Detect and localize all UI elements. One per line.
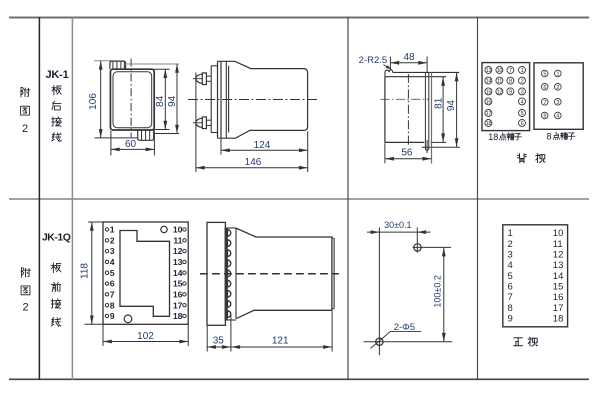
svg-text:12: 12 <box>497 90 503 96</box>
svg-text:3: 3 <box>508 250 513 261</box>
svg-text:35: 35 <box>213 336 225 347</box>
svg-text:5: 5 <box>110 268 115 278</box>
svg-text:2: 2 <box>22 302 28 314</box>
svg-text:2-R2.5: 2-R2.5 <box>359 55 388 66</box>
svg-text:13: 13 <box>173 257 183 267</box>
svg-text:6: 6 <box>508 281 513 292</box>
svg-text:15: 15 <box>553 281 564 292</box>
svg-text:94: 94 <box>446 100 457 112</box>
svg-text:2: 2 <box>22 123 28 135</box>
svg-text:30±0.1: 30±0.1 <box>384 220 411 230</box>
svg-text:2: 2 <box>521 79 524 85</box>
svg-text:17: 17 <box>173 300 183 310</box>
svg-text:146: 146 <box>245 157 262 168</box>
svg-text:9: 9 <box>110 311 115 321</box>
svg-text:14: 14 <box>486 79 492 85</box>
svg-text:9: 9 <box>508 313 513 324</box>
svg-text:1: 1 <box>521 68 524 74</box>
svg-text:16: 16 <box>486 100 492 106</box>
svg-text:8: 8 <box>543 114 546 120</box>
svg-text:1: 1 <box>110 225 115 235</box>
svg-text:18: 18 <box>486 121 492 127</box>
svg-text:5: 5 <box>508 271 513 282</box>
svg-text:2: 2 <box>110 235 115 245</box>
svg-text:8: 8 <box>546 131 551 141</box>
svg-text:7: 7 <box>509 68 512 74</box>
svg-text:5: 5 <box>543 72 546 78</box>
svg-text:81: 81 <box>433 97 444 109</box>
svg-text:6: 6 <box>110 279 115 289</box>
svg-text:13: 13 <box>553 260 564 271</box>
svg-text:3: 3 <box>556 100 559 106</box>
svg-text:48: 48 <box>403 52 415 63</box>
svg-text:118: 118 <box>80 263 91 279</box>
svg-text:10: 10 <box>553 228 564 239</box>
svg-text:106: 106 <box>88 93 99 110</box>
svg-text:7: 7 <box>508 292 513 303</box>
svg-text:1: 1 <box>508 228 513 239</box>
svg-text:6: 6 <box>543 85 546 91</box>
svg-text:16: 16 <box>553 292 564 303</box>
svg-text:15: 15 <box>173 279 183 289</box>
svg-text:4: 4 <box>556 114 559 120</box>
svg-text:7: 7 <box>543 100 546 106</box>
svg-text:JK-1: JK-1 <box>45 69 68 81</box>
svg-text:12: 12 <box>173 246 183 256</box>
svg-text:5: 5 <box>521 111 524 117</box>
svg-text:12: 12 <box>553 250 564 261</box>
svg-text:11: 11 <box>173 235 182 245</box>
svg-text:17: 17 <box>486 111 492 117</box>
svg-text:121: 121 <box>272 336 289 347</box>
svg-text:16: 16 <box>173 289 183 299</box>
svg-text:14: 14 <box>553 271 564 282</box>
svg-text:2: 2 <box>508 239 513 250</box>
svg-text:94: 94 <box>167 95 178 107</box>
svg-text:4: 4 <box>110 257 115 267</box>
svg-text:56: 56 <box>401 148 413 159</box>
svg-text:11: 11 <box>497 79 502 85</box>
svg-text:15: 15 <box>486 90 492 96</box>
svg-text:100±0.2: 100±0.2 <box>433 275 443 307</box>
svg-text:7: 7 <box>110 289 115 299</box>
svg-text:10: 10 <box>173 225 183 235</box>
svg-text:1: 1 <box>556 72 559 78</box>
svg-text:JK-1Q: JK-1Q <box>42 232 71 244</box>
svg-text:11: 11 <box>553 239 563 250</box>
svg-text:17: 17 <box>553 303 564 314</box>
svg-text:8: 8 <box>508 303 513 314</box>
svg-text:102: 102 <box>137 331 154 342</box>
svg-text:4: 4 <box>521 100 524 106</box>
svg-text:4: 4 <box>508 260 513 271</box>
svg-text:6: 6 <box>521 121 524 127</box>
svg-text:8: 8 <box>110 300 115 310</box>
svg-text:14: 14 <box>173 268 183 278</box>
svg-text:18: 18 <box>488 132 498 142</box>
svg-text:60: 60 <box>125 139 137 150</box>
svg-text:9: 9 <box>509 90 512 96</box>
svg-text:2: 2 <box>556 85 559 91</box>
svg-text:8: 8 <box>509 79 512 85</box>
svg-text:124: 124 <box>254 140 271 151</box>
svg-text:13: 13 <box>486 68 492 74</box>
svg-text:18: 18 <box>173 311 183 321</box>
svg-text:10: 10 <box>497 68 503 74</box>
svg-text:84: 84 <box>155 95 166 107</box>
svg-text:3: 3 <box>110 246 115 256</box>
svg-text:3: 3 <box>521 90 524 96</box>
svg-text:18: 18 <box>553 313 564 324</box>
